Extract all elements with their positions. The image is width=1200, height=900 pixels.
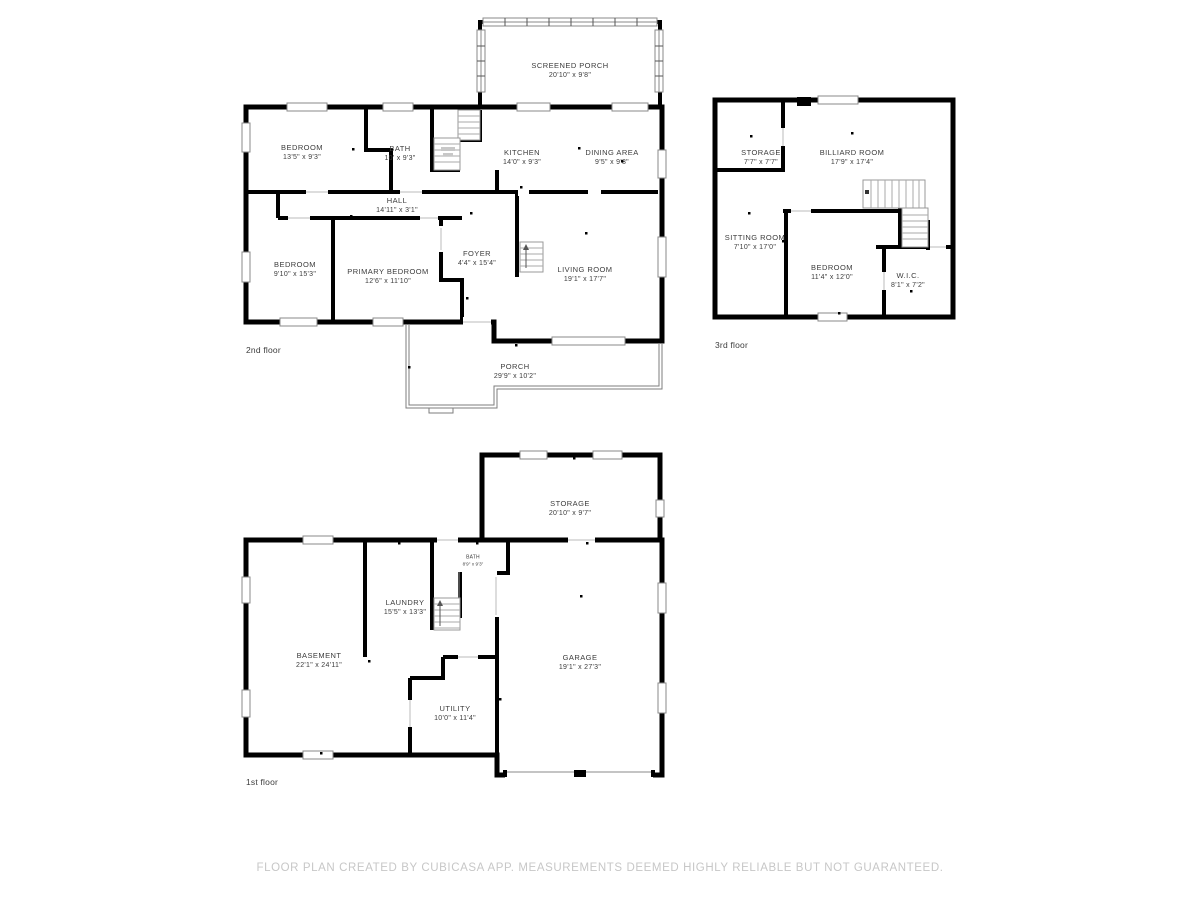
floor-label-3rd: 3rd floor: [715, 340, 748, 350]
room-name: BASEMENT: [296, 651, 342, 661]
room-label-utility: UTILITY 10'0" x 11'4": [434, 704, 476, 724]
room-dims: 17'9" x 17'4": [820, 158, 885, 167]
first-floor-plan: [242, 451, 666, 781]
room-name: BEDROOM: [811, 263, 853, 273]
third-floor-stairs: [863, 180, 928, 247]
room-dims: 10' x 9'3": [384, 154, 415, 163]
footer-disclaimer: FLOOR PLAN CREATED BY CUBICASA APP. MEAS…: [0, 862, 1200, 874]
room-name: HALL: [376, 196, 418, 206]
room-dims: 7'10" x 17'0": [725, 243, 785, 252]
room-name: KITCHEN: [503, 148, 541, 158]
room-label-garage: GARAGE 19'1" x 27'3": [559, 653, 601, 673]
room-name: SITTING ROOM: [725, 233, 785, 243]
room-dims: 8'1" x 7'2": [891, 281, 925, 290]
room-name: PRIMARY BEDROOM: [347, 267, 429, 277]
third-floor-windows: [818, 96, 858, 321]
room-name: LIVING ROOM: [558, 265, 613, 275]
first-floor-door-lines: [410, 540, 595, 727]
room-label-basement: BASEMENT 22'1" x 24'11": [296, 651, 342, 671]
foyer-stairs: [520, 242, 543, 272]
room-dims: 22'1" x 24'11": [296, 661, 342, 670]
room-name: BILLIARD ROOM: [820, 148, 885, 158]
room-dims: 9'10" x 15'3": [274, 270, 316, 279]
room-dims: 14'11" x 3'1": [376, 206, 418, 215]
room-name: BATH: [463, 555, 484, 562]
room-name: W.I.C.: [891, 271, 925, 281]
room-label-porch: PORCH 29'9" x 10'2": [494, 362, 536, 382]
room-label-primary-bedroom: PRIMARY BEDROOM 12'6" x 11'10": [347, 267, 429, 287]
room-dims: 10'0" x 11'4": [434, 714, 476, 723]
room-name: STORAGE: [741, 148, 781, 158]
room-label-living-room: LIVING ROOM 19'1" x 17'7": [558, 265, 613, 285]
room-name: UTILITY: [434, 704, 476, 714]
chimney: [797, 97, 811, 106]
room-name: LAUNDRY: [384, 598, 426, 608]
room-label-bedroom-3f: BEDROOM 11'4" x 12'0": [811, 263, 853, 283]
room-name: BEDROOM: [274, 260, 316, 270]
floor-label-1st: 1st floor: [246, 777, 278, 787]
floor-plan-drawing: [0, 0, 1200, 900]
room-name: GARAGE: [559, 653, 601, 663]
room-dims: 15'5" x 13'3": [384, 608, 426, 617]
room-label-bedroom-top: BEDROOM 13'5" x 9'3": [281, 143, 323, 163]
room-label-storage-1f: STORAGE 20'10" x 9'7": [549, 499, 591, 519]
room-name: BATH: [384, 144, 415, 154]
room-name: SCREENED PORCH: [531, 61, 608, 71]
room-label-kitchen: KITCHEN 14'0" x 9'3": [503, 148, 541, 168]
room-label-foyer: FOYER 4'4" x 15'4": [458, 249, 496, 269]
room-label-screened-porch: SCREENED PORCH 20'10" x 9'8": [531, 61, 608, 81]
room-name: BEDROOM: [281, 143, 323, 153]
room-dims: 4'4" x 15'4": [458, 259, 496, 268]
room-label-billiard-room: BILLIARD ROOM 17'9" x 17'4": [820, 148, 885, 168]
first-floor-storage-walls: [482, 455, 660, 540]
first-floor-interior-walls: [365, 540, 510, 775]
room-label-dining-area: DINING AREA 9'5" x 9'3": [585, 148, 638, 168]
room-name: STORAGE: [549, 499, 591, 509]
room-dims: 19'1" x 17'7": [558, 275, 613, 284]
room-dims: 9'5" x 9'3": [585, 158, 638, 167]
floor-label-2nd: 2nd floor: [246, 345, 281, 355]
first-floor-stairs: [434, 572, 460, 630]
room-label-laundry: LAUNDRY 15'5" x 13'3": [384, 598, 426, 618]
room-dims: 11'4" x 12'0": [811, 273, 853, 282]
room-label-bath-1f: BATH 8'9" x 9'3": [463, 555, 484, 568]
room-dims: 13'5" x 9'3": [281, 153, 323, 162]
room-label-sitting-room: SITTING ROOM 7'10" x 17'0": [725, 233, 785, 253]
room-dims: 20'10" x 9'8": [531, 71, 608, 80]
room-label-wic: W.I.C. 8'1" x 7'2": [891, 271, 925, 291]
room-dims: 8'9" x 9'3": [463, 561, 484, 567]
room-dims: 29'9" x 10'2": [494, 372, 536, 381]
room-dims: 19'1" x 27'3": [559, 663, 601, 672]
room-label-storage-3f: STORAGE 7'7" x 7'7": [741, 148, 781, 168]
room-dims: 14'0" x 9'3": [503, 158, 541, 167]
room-dims: 12'6" x 11'10": [347, 277, 429, 286]
room-dims: 20'10" x 9'7": [549, 509, 591, 518]
room-name: PORCH: [494, 362, 536, 372]
screened-porch-windows: [477, 18, 663, 92]
room-name: DINING AREA: [585, 148, 638, 158]
floor-plan-canvas: SCREENED PORCH 20'10" x 9'8" BEDROOM 13'…: [0, 0, 1200, 900]
room-label-bath-2f: BATH 10' x 9'3": [384, 144, 415, 164]
room-label-hall: HALL 14'11" x 3'1": [376, 196, 418, 216]
second-floor-stairs: [434, 110, 480, 170]
room-dims: 7'7" x 7'7": [741, 158, 781, 167]
room-name: FOYER: [458, 249, 496, 259]
room-label-bedroom-left: BEDROOM 9'10" x 15'3": [274, 260, 316, 280]
